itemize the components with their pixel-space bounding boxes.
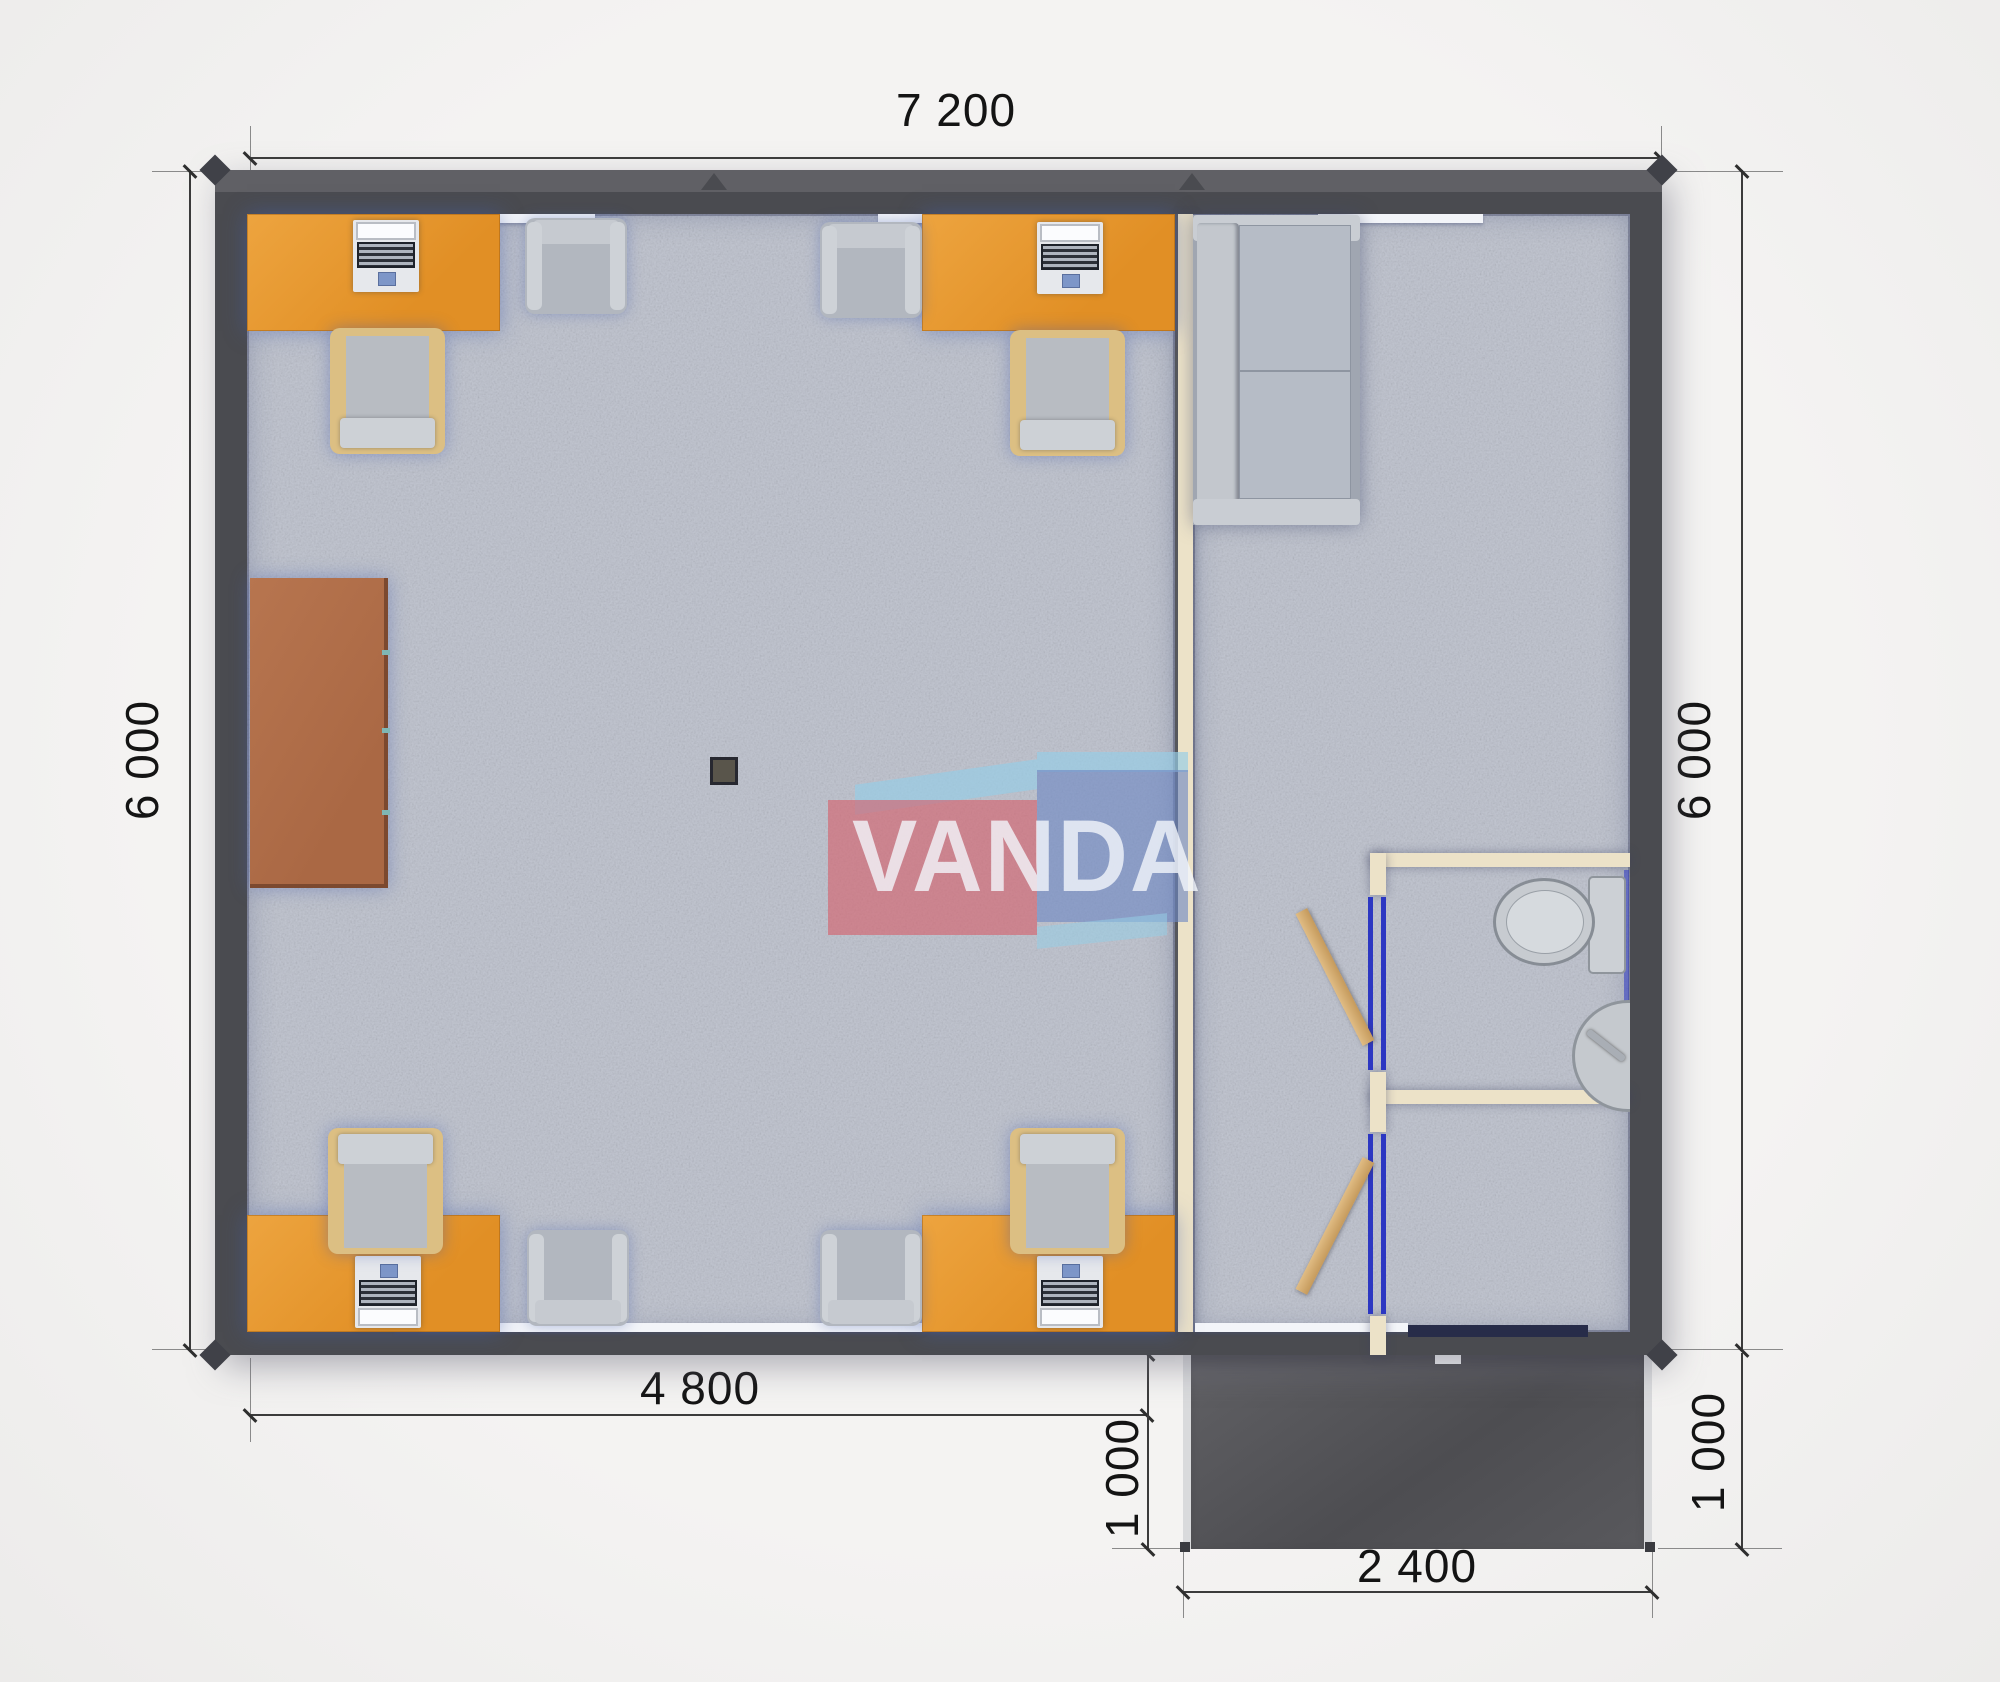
porch-trim-right	[1644, 1352, 1652, 1549]
toilet	[1493, 878, 1595, 966]
laptop-trackpad	[1062, 274, 1080, 288]
office-chair	[1010, 330, 1125, 456]
watermark-logo-text: VANDA	[852, 798, 1178, 915]
module-joint-marker	[701, 1335, 727, 1352]
cabinet-hinge	[382, 810, 390, 815]
module-joint-marker	[1179, 173, 1205, 190]
sofa-cushion	[1239, 371, 1351, 499]
entrance-porch	[1183, 1352, 1652, 1549]
sofa-cushion	[1239, 225, 1351, 371]
dim-label-bottom-left-width: 4 800	[640, 1361, 760, 1415]
laptop-keyboard	[1041, 1280, 1099, 1306]
armchair-back	[828, 1300, 914, 1324]
laptop-screen	[358, 1308, 418, 1326]
laptop	[1037, 1256, 1103, 1328]
bathroom-wall-left	[1370, 853, 1386, 895]
dim-label-top-width: 7 200	[896, 83, 1016, 137]
laptop	[355, 1256, 421, 1328]
armchair-arm	[905, 226, 920, 314]
entrance-door-opening	[1408, 1325, 1588, 1337]
toilet-seat	[1506, 890, 1584, 954]
sofa-arm	[1193, 499, 1360, 525]
armchair-arm	[610, 222, 625, 310]
dim-label-right-height: 6 000	[1667, 700, 1721, 820]
laptop-keyboard	[357, 242, 415, 268]
building-outline	[215, 170, 1662, 1355]
dim-label-porch-height-left: 1 000	[1095, 1418, 1149, 1538]
door-handle	[1435, 1355, 1461, 1364]
armchair-back	[533, 220, 619, 244]
office-chair	[1010, 1128, 1125, 1254]
armchair	[527, 1230, 629, 1326]
module-joint-marker	[701, 173, 727, 190]
dim-ext	[250, 1358, 251, 1442]
porch-corner	[1645, 1542, 1655, 1552]
laptop-screen	[1040, 1308, 1100, 1326]
dim-ext	[1183, 1552, 1184, 1618]
sofa-backrest	[1197, 223, 1239, 517]
dim-label-porch-height-right: 1 000	[1681, 1392, 1735, 1512]
cabinet-hinge	[382, 728, 390, 733]
dim-ext	[1658, 1548, 1782, 1549]
office-chair	[330, 328, 445, 454]
laptop-screen	[356, 222, 416, 240]
chair-seat	[1026, 1164, 1109, 1248]
armchair-arm	[527, 222, 542, 310]
laptop-screen	[1040, 224, 1100, 242]
dim-ext	[1665, 171, 1783, 172]
dim-line-right	[1741, 170, 1743, 1350]
laptop	[1037, 222, 1103, 294]
dim-line-left	[189, 170, 191, 1350]
chair-backrest	[340, 418, 435, 448]
dim-line-top	[250, 157, 1662, 159]
laptop-keyboard	[1041, 244, 1099, 270]
chair-seat	[1026, 338, 1109, 422]
door-frame	[1368, 897, 1373, 1070]
dim-ext	[1665, 1349, 1783, 1350]
cabinet-hinge	[382, 650, 390, 655]
door-frame	[1381, 1134, 1386, 1314]
laptop-trackpad	[378, 272, 396, 286]
laptop-trackpad	[1062, 1264, 1080, 1278]
chair-backrest	[338, 1134, 433, 1164]
laptop-keyboard	[359, 1280, 417, 1306]
floor-plan-canvas: 7 200 6 000 6 000 4 800 1 000 1 000 2 40…	[0, 0, 2000, 1682]
armchair	[820, 1230, 922, 1326]
laptop-trackpad	[380, 1264, 398, 1278]
dim-line-porch-right	[1741, 1353, 1743, 1549]
chair-seat	[346, 336, 429, 420]
armchair-arm	[822, 226, 837, 314]
porch-corner	[1180, 1542, 1190, 1552]
chair-seat	[344, 1164, 427, 1248]
armchair	[820, 222, 922, 318]
floor-drain	[710, 757, 738, 785]
chair-backrest	[1020, 420, 1115, 450]
bathroom-wall-left	[1370, 1316, 1386, 1355]
sofa	[1193, 215, 1360, 525]
laptop	[353, 220, 419, 292]
armchair-back	[535, 1300, 621, 1324]
office-chair	[328, 1128, 443, 1254]
bathroom-wall-top	[1370, 853, 1630, 867]
armchair	[525, 218, 627, 314]
porch-trim-left	[1183, 1352, 1191, 1549]
watermark-top-band	[1037, 752, 1188, 772]
bathroom-wall-left	[1370, 1072, 1386, 1132]
dim-ext	[1652, 1552, 1653, 1618]
armchair-back	[828, 224, 914, 248]
dim-label-left-height: 6 000	[115, 700, 169, 820]
storage-cabinet	[250, 578, 388, 888]
chair-backrest	[1020, 1134, 1115, 1164]
door-frame	[1381, 897, 1386, 1070]
